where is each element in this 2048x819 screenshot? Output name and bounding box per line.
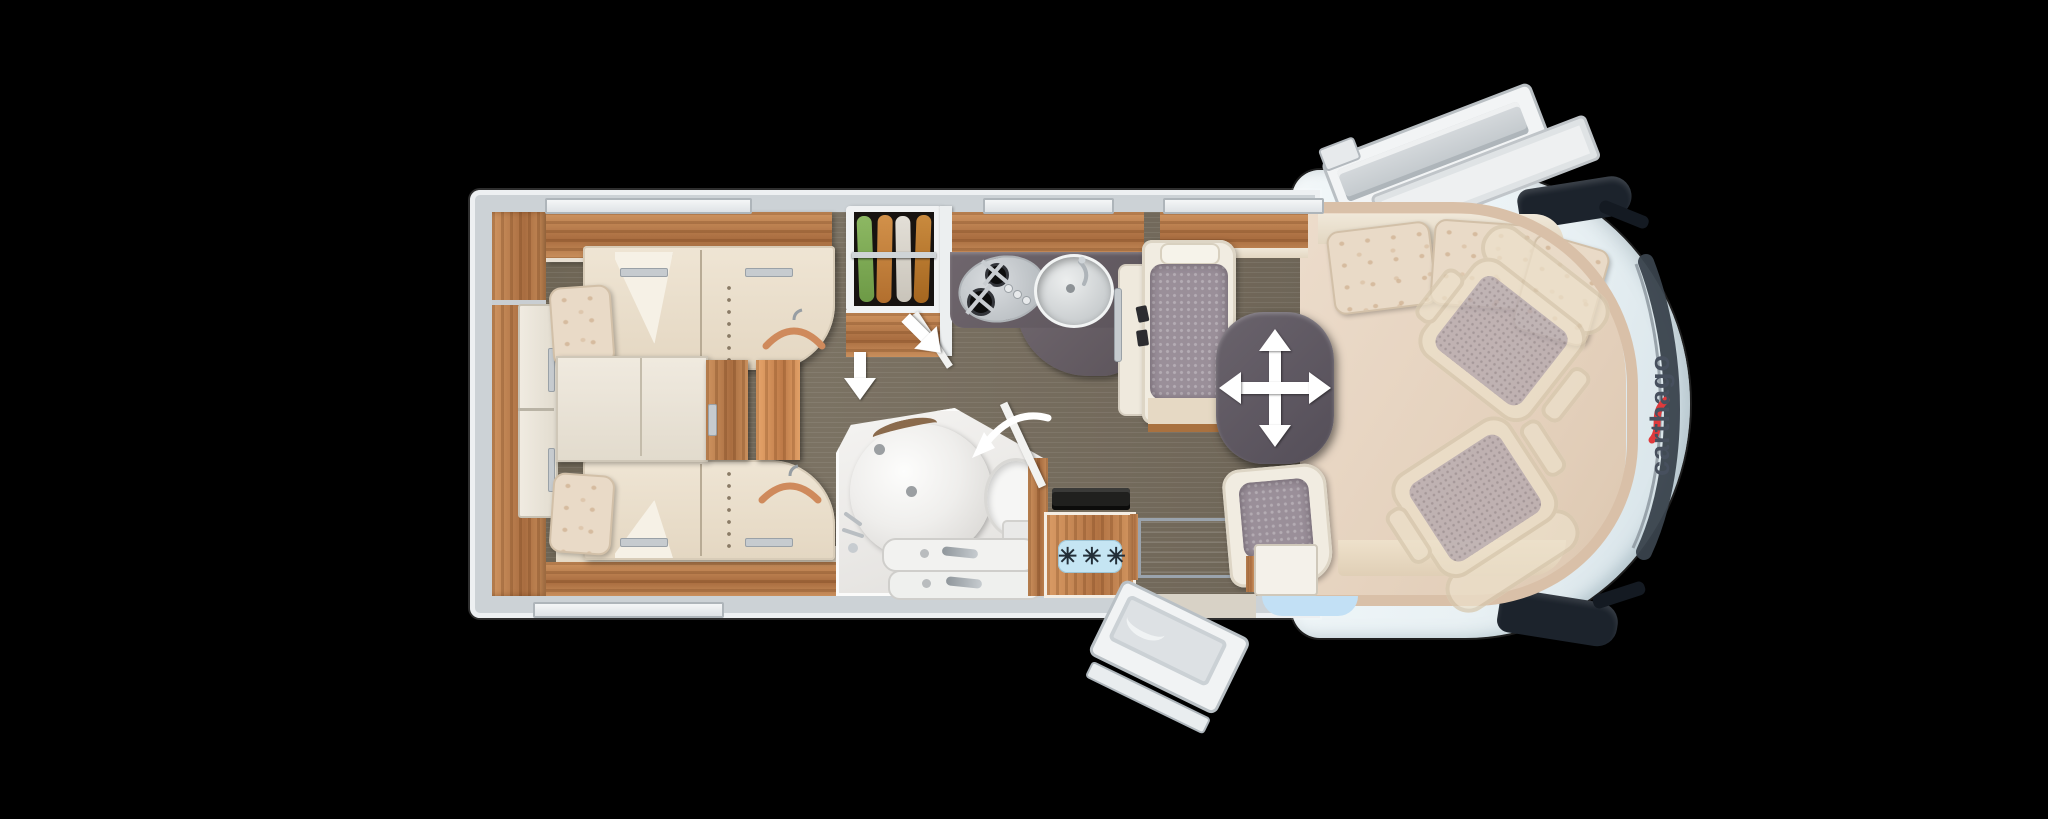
- clothes-hanger-icon: [762, 466, 818, 500]
- overlay-graphics: [0, 0, 2048, 819]
- clothes-hanger-icon: [766, 310, 822, 346]
- brand-logo: carthago: [1646, 345, 1674, 485]
- kitchen-faucet-icon: [1079, 257, 1087, 285]
- door-swing-arrow-icon: [972, 416, 1048, 458]
- motorhome-floorplan: ✳✳✳: [0, 0, 2048, 819]
- bathroom-faucet-icon: [844, 514, 862, 553]
